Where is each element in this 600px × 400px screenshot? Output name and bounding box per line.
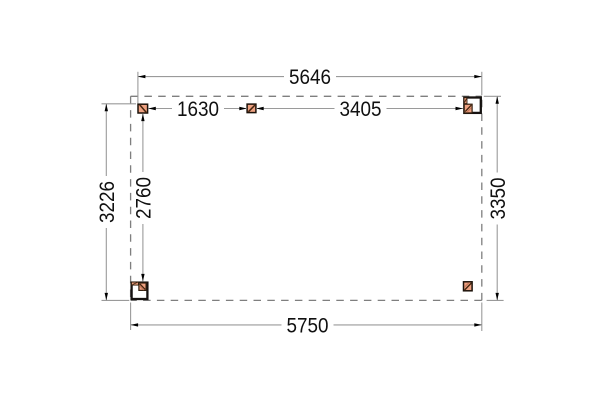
svg-text:3405: 3405 bbox=[340, 98, 382, 121]
svg-text:2760: 2760 bbox=[133, 177, 156, 219]
svg-text:1630: 1630 bbox=[177, 98, 219, 121]
svg-text:5750: 5750 bbox=[287, 315, 329, 338]
svg-text:3350: 3350 bbox=[487, 178, 510, 220]
svg-text:3226: 3226 bbox=[96, 181, 119, 223]
svg-text:5646: 5646 bbox=[289, 66, 331, 89]
